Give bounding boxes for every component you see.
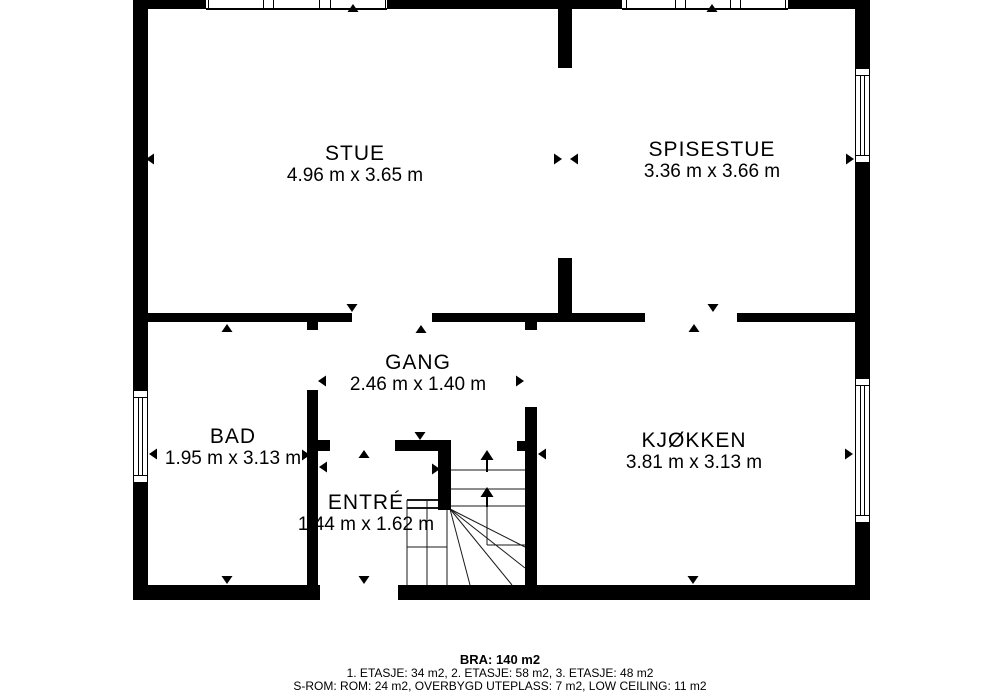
dimension-arrow-left <box>570 154 578 165</box>
dimension-arrow-up <box>222 324 233 332</box>
dimension-arrow-down <box>359 576 370 584</box>
room-dimensions: 1.44 m x 1.62 m <box>298 514 434 536</box>
room-dimensions: 1.95 m x 3.13 m <box>165 448 301 470</box>
room-dimensions: 4.96 m x 3.65 m <box>287 165 423 187</box>
dimension-arrow-down <box>708 304 719 312</box>
wall-segment <box>318 440 330 451</box>
room-name: SPISESTUE <box>644 138 780 161</box>
floorplan-canvas: STUE 4.96 m x 3.65 m SPISESTUE 3.36 m x … <box>0 0 1000 700</box>
wall-segment <box>398 585 870 600</box>
window-symbol <box>622 0 788 10</box>
room-dimensions: 3.81 m x 3.13 m <box>626 452 762 474</box>
room-name: GANG <box>350 351 486 374</box>
window-mullion <box>740 0 741 8</box>
dimension-arrow-left <box>318 376 326 387</box>
wall-segment <box>432 313 645 322</box>
window-mullion <box>208 0 209 8</box>
dimension-arrow-up <box>689 324 700 332</box>
dimension-arrow-left <box>149 449 157 460</box>
room-label-spisestue: SPISESTUE 3.36 m x 3.66 m <box>644 138 780 183</box>
window-mullion <box>685 0 686 8</box>
stair-line <box>450 509 470 585</box>
wall-segment <box>307 390 318 600</box>
window-mullion <box>330 0 331 8</box>
dimension-arrow-up <box>416 325 427 333</box>
wall-segment <box>525 322 537 330</box>
window-frame-line <box>856 515 869 516</box>
window-symbol <box>133 390 148 483</box>
stair-line <box>450 509 525 547</box>
window-mullion <box>319 0 320 8</box>
window-frame-line <box>860 386 865 515</box>
dimension-arrow-left <box>538 449 546 460</box>
wall-segment <box>438 451 451 510</box>
room-name: ENTRÉ <box>298 491 434 514</box>
room-name: KJØKKEN <box>626 429 762 452</box>
dimension-arrow-right <box>846 154 854 165</box>
room-label-kjokken: KJØKKEN 3.81 m x 3.13 m <box>626 429 762 474</box>
room-dimensions: 2.46 m x 1.40 m <box>350 374 486 396</box>
dimension-arrow-up <box>359 450 370 458</box>
window-frame-line <box>856 155 869 156</box>
window-mullion <box>730 0 731 8</box>
wall-segment <box>525 407 537 600</box>
dimension-arrow-left <box>319 462 327 473</box>
dimension-arrow-down <box>688 576 699 584</box>
window-frame-line <box>138 398 143 475</box>
wall-segment <box>737 313 855 322</box>
dimension-arrow-down <box>222 576 233 584</box>
window-mullion <box>626 0 627 8</box>
window-mullion <box>263 0 264 8</box>
window-mullion <box>785 0 786 8</box>
dimension-arrow-right <box>516 376 524 387</box>
window-frame-line <box>860 76 865 155</box>
area-summary: BRA: 140 m2 1. ETASJE: 34 m2, 2. ETASJE:… <box>0 652 1000 693</box>
dimension-arrow-down <box>347 304 358 312</box>
window-symbol <box>206 0 387 10</box>
srom-areas: S-ROM: ROM: 24 m2, OVERBYGD UTEPLASS: 7 … <box>0 680 1000 693</box>
floorplan: STUE 4.96 m x 3.65 m SPISESTUE 3.36 m x … <box>0 0 1000 700</box>
room-label-entre: ENTRÉ 1.44 m x 1.62 m <box>298 491 434 536</box>
wall-segment <box>395 440 451 451</box>
window-mullion <box>385 0 386 8</box>
wall-segment <box>558 0 572 68</box>
stair-direction-arrow <box>481 487 494 497</box>
dimension-arrow-right <box>845 449 853 460</box>
room-dimensions: 3.36 m x 3.66 m <box>644 161 780 183</box>
room-name: BAD <box>165 425 301 448</box>
window-symbol <box>855 378 870 523</box>
window-frame-line <box>134 475 147 476</box>
window-mullion <box>273 0 274 8</box>
window-symbol <box>855 68 870 163</box>
wall-segment <box>148 313 352 322</box>
room-label-stue: STUE 4.96 m x 3.65 m <box>287 142 423 187</box>
room-label-bad: BAD 1.95 m x 3.13 m <box>165 425 301 470</box>
stair-line <box>450 509 525 568</box>
dimension-arrow-down <box>415 432 426 440</box>
stair-direction-arrow <box>481 450 494 460</box>
wall-segment <box>307 322 318 330</box>
wall-segment <box>517 441 525 451</box>
bra-total: BRA: 140 m2 <box>0 652 1000 667</box>
window-mullion <box>675 0 676 8</box>
stair-line <box>450 509 512 585</box>
dimension-arrow-right <box>554 154 562 165</box>
wall-segment <box>133 0 148 600</box>
room-label-gang: GANG 2.46 m x 1.40 m <box>350 351 486 396</box>
wall-segment <box>133 585 320 600</box>
room-name: STUE <box>287 142 423 165</box>
